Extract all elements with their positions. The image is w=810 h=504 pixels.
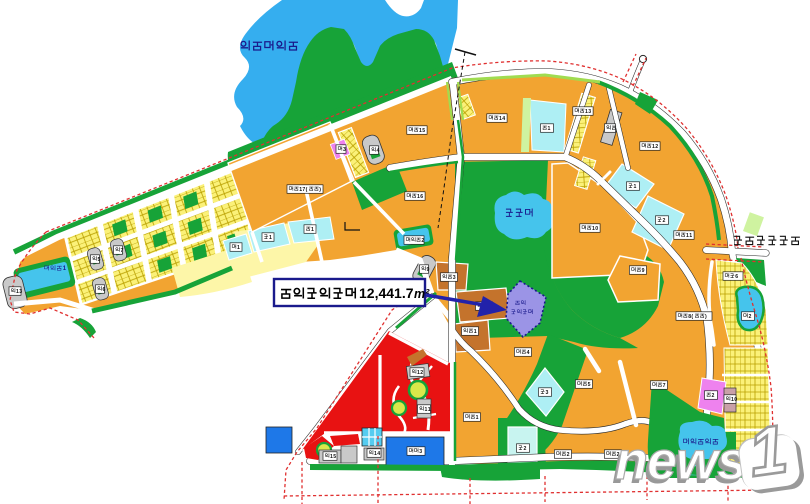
svg-text:4: 4 — [377, 148, 380, 154]
svg-text:5: 5 — [98, 257, 101, 263]
svg-text:5: 5 — [333, 454, 336, 460]
svg-text:3: 3 — [343, 147, 346, 153]
svg-text:): ) — [705, 314, 707, 320]
svg-text:7: 7 — [121, 248, 124, 254]
svg-text:4: 4 — [527, 350, 530, 356]
svg-text:4: 4 — [377, 451, 380, 457]
svg-text:): ) — [319, 187, 321, 193]
svg-text:1: 1 — [689, 233, 692, 239]
svg-text:1: 1 — [474, 329, 477, 335]
svg-text:3: 3 — [419, 449, 422, 455]
svg-text:7: 7 — [663, 383, 666, 389]
svg-text:1: 1 — [269, 235, 272, 241]
svg-text:2: 2 — [524, 446, 527, 452]
svg-text:(: ( — [306, 187, 308, 193]
svg-text:3: 3 — [546, 390, 549, 396]
svg-text:9: 9 — [427, 267, 430, 273]
svg-text:2: 2 — [567, 452, 570, 458]
svg-text:0: 0 — [595, 226, 598, 232]
svg-text:1: 1 — [311, 227, 314, 233]
svg-text:12,441.7: 12,441.7 — [359, 285, 414, 301]
svg-text:6: 6 — [103, 287, 106, 293]
svg-text:1: 1 — [428, 407, 431, 413]
svg-text:3: 3 — [453, 275, 456, 281]
svg-text:2: 2 — [663, 218, 666, 224]
svg-text:5: 5 — [422, 128, 425, 134]
svg-text:3: 3 — [588, 109, 591, 115]
svg-text:0: 0 — [734, 397, 737, 403]
svg-text:1: 1 — [548, 126, 551, 132]
svg-text:6: 6 — [420, 194, 423, 200]
svg-text:2: 2 — [749, 314, 752, 320]
svg-text:9: 9 — [642, 268, 645, 274]
svg-text:5: 5 — [588, 382, 591, 388]
svg-text:6: 6 — [735, 274, 738, 280]
svg-text:1: 1 — [634, 184, 637, 190]
svg-text:2: 2 — [655, 144, 658, 150]
svg-text:3: 3 — [19, 289, 22, 295]
svg-text:1: 1 — [476, 415, 479, 421]
svg-text:4: 4 — [502, 116, 505, 122]
svg-text:2: 2 — [421, 238, 424, 244]
svg-text:(: ( — [691, 314, 693, 320]
svg-text:1: 1 — [237, 245, 240, 251]
svg-text:2: 2 — [420, 370, 423, 376]
svg-text:2: 2 — [712, 393, 715, 399]
